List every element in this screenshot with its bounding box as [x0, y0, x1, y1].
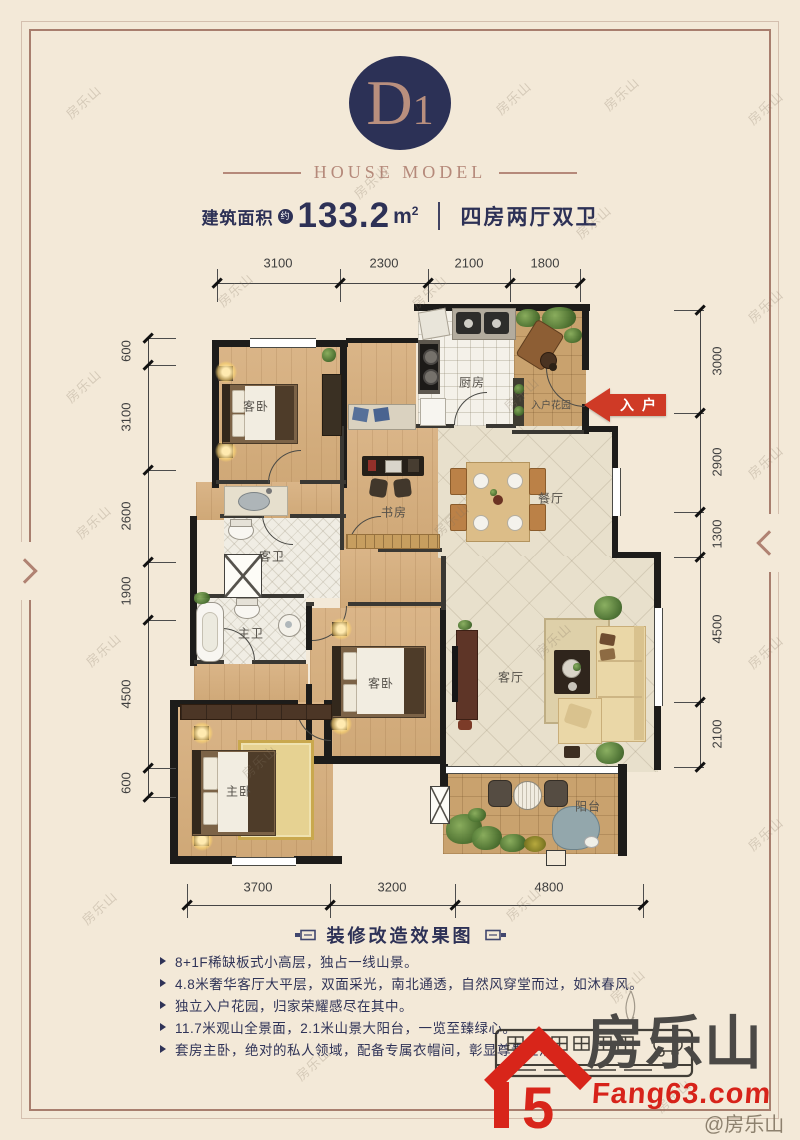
dim-top-1: 3100: [264, 256, 293, 271]
divider-line: [438, 202, 440, 230]
shaft: [430, 786, 450, 824]
chevron-right-icon: [12, 558, 37, 583]
pillow: [203, 757, 218, 790]
plant: [564, 328, 582, 343]
plant: [472, 826, 502, 850]
room-label-master-bedroom: 主卧: [226, 783, 252, 800]
desk-item: [368, 460, 376, 471]
dim-right-2: 2900: [710, 448, 725, 477]
kettle: [549, 363, 557, 371]
plant: [322, 348, 336, 362]
extension-line: [146, 768, 176, 769]
wall-segment: [170, 700, 178, 860]
branding-block[interactable]: 5 房乐山 Fang63.com @房乐山: [482, 1008, 800, 1140]
feature-item: 4.8米奢华客厅大平层，双面采光，南北通透，自然风穿堂而过，如沐春风。: [160, 972, 643, 994]
partition-wall: [486, 424, 516, 428]
sink-drain: [492, 319, 501, 328]
chair: [450, 468, 467, 495]
plate: [473, 515, 489, 531]
table-plant: [573, 663, 581, 671]
area-unit-sup: 2: [412, 204, 419, 218]
decor-pot: [458, 720, 472, 730]
dim-left-3: 2600: [119, 502, 134, 531]
bullet-arrow-icon: [160, 979, 166, 987]
partition-wall: [252, 660, 306, 664]
room-label-master-bath: 主卫: [238, 625, 264, 642]
feature-text: 11.7米观山全景面，2.1米山景大阳台，一览至臻绿心。: [175, 1017, 517, 1037]
storage-box: [373, 407, 390, 422]
bed-headboard: [222, 384, 230, 442]
area-label: 建筑面积: [202, 204, 274, 229]
subtitle-text: HOUSE MODEL: [314, 162, 487, 183]
partition-wall: [512, 430, 584, 434]
dimension-line: [148, 338, 149, 797]
bed-throw: [404, 648, 424, 714]
plant: [468, 808, 486, 822]
dim-top-3: 2100: [455, 256, 484, 271]
room-label-kitchen: 厨房: [459, 374, 485, 391]
extension-line: [146, 365, 176, 366]
brand-name: 房乐山: [586, 1012, 763, 1076]
wall-segment: [612, 552, 660, 558]
lamp: [330, 618, 352, 640]
entry-arrow: 入户: [584, 388, 666, 422]
dim-left-4: 1900: [119, 577, 134, 606]
chevron-left-icon: [756, 530, 781, 555]
window: [612, 468, 621, 516]
cutting-board: [418, 308, 450, 340]
window: [232, 857, 296, 866]
pillow: [343, 652, 357, 680]
lamp: [191, 722, 213, 744]
burner: [423, 349, 439, 365]
sofa-back: [634, 626, 644, 740]
extension-line: [340, 269, 341, 302]
stone: [584, 836, 599, 848]
basin: [238, 492, 270, 511]
corridor-floor: [194, 664, 308, 704]
window: [446, 766, 618, 774]
chair: [393, 478, 412, 498]
feature-text: 8+1F稀缺板式小高层，独占一线山景。: [175, 951, 418, 971]
room-label-living: 客厅: [498, 669, 524, 686]
bookshelf: [346, 534, 440, 549]
subtitle-line-right: [499, 172, 577, 174]
plate: [507, 473, 523, 489]
model-code: D1: [366, 71, 433, 135]
partition-wall: [348, 602, 444, 606]
plate: [473, 473, 489, 489]
side-table: [564, 746, 580, 758]
bullet-arrow-icon: [160, 1001, 166, 1009]
wall-segment: [346, 338, 418, 343]
house-logo-numeral: 5: [522, 1076, 554, 1134]
wall-segment: [612, 514, 618, 556]
cup: [568, 682, 577, 691]
poster-page: D1 HOUSE MODEL 建筑面积 约 133.2 m2 四房两厅双卫 31…: [0, 0, 800, 1140]
wall-segment: [212, 340, 219, 488]
partition-wall: [340, 426, 344, 550]
model-code-number: 1: [413, 88, 434, 134]
balcony-table: [513, 781, 542, 810]
room-label-guest-bath: 客卫: [259, 548, 285, 565]
bed-throw: [275, 386, 294, 440]
window: [250, 338, 316, 348]
chair: [544, 780, 568, 807]
model-code-letter: D: [366, 67, 412, 138]
room-label-dining: 餐厅: [538, 490, 564, 507]
window: [654, 608, 663, 706]
pillow: [232, 414, 245, 437]
centerpiece: [493, 495, 503, 505]
wall-segment: [654, 704, 661, 770]
wall-segment: [618, 764, 627, 856]
extension-line: [146, 797, 176, 798]
dim-left-6: 600: [119, 772, 134, 794]
plant-yellow: [524, 836, 546, 852]
column-stub: [546, 850, 566, 866]
wardrobe: [180, 704, 332, 720]
extension-line: [146, 620, 176, 621]
extension-line: [146, 562, 176, 563]
plate: [507, 515, 523, 531]
area-unit: m2: [393, 204, 418, 229]
area-value: 133.2: [298, 196, 391, 236]
caption-row: 装修改造效果图: [0, 922, 800, 948]
wardrobe: [322, 374, 342, 436]
dim-left-2: 3100: [119, 403, 134, 432]
room-label-bedroom-2: 客卧: [368, 675, 394, 692]
plant: [594, 596, 622, 620]
model-badge: D1: [349, 56, 451, 150]
area-row: 建筑面积 约 133.2 m2 四房两厅双卫: [0, 195, 800, 237]
caption-text: 装修改造效果图: [327, 922, 474, 948]
wall-segment: [294, 856, 342, 864]
desk-item: [408, 459, 419, 472]
dim-left-1: 600: [119, 340, 134, 362]
plant: [500, 834, 526, 852]
extension-line: [580, 269, 581, 302]
bullet-arrow-icon: [160, 1023, 166, 1031]
caption-ornament-left-icon: [294, 928, 318, 942]
house-logo-icon: 5: [482, 1024, 594, 1134]
desk-book: [385, 460, 402, 473]
entry-arrow-head-icon: [584, 388, 610, 422]
brand-credit: @房乐山: [704, 1108, 784, 1137]
next-chevron-icon[interactable]: [756, 514, 782, 572]
approx-badge: 约: [278, 209, 293, 224]
wall-segment: [582, 304, 589, 370]
dim-bottom-2: 3200: [378, 880, 407, 895]
storage-box: [352, 407, 369, 422]
extension-line: [146, 470, 176, 471]
tv-cabinet: [456, 630, 478, 720]
dim-top-4: 1800: [531, 256, 560, 271]
area-unit-m: m: [393, 205, 412, 228]
wall-segment: [440, 608, 446, 766]
wall-segment: [170, 856, 236, 864]
chair: [488, 780, 512, 807]
partition-wall: [300, 480, 346, 484]
dimension-line: [217, 283, 581, 284]
feature-text: 独立入户花园，归家荣耀感尽在其中。: [175, 995, 413, 1015]
pillow: [599, 633, 616, 646]
pillow: [203, 792, 218, 825]
pillow: [343, 684, 357, 712]
room-label-entry-garden: 入户花园: [531, 397, 571, 412]
room-label-bedroom-1: 客卧: [243, 398, 269, 415]
plant: [458, 620, 472, 630]
dim-right-3: 1300: [710, 520, 725, 549]
chair: [369, 478, 389, 498]
pillow: [599, 648, 615, 661]
bathtub-inner: [202, 612, 218, 652]
appliance: [420, 398, 446, 426]
brand-site-url[interactable]: Fang63.com: [591, 1078, 773, 1111]
faucet: [266, 488, 272, 494]
prev-chevron-icon[interactable]: [12, 542, 38, 600]
plant: [194, 592, 210, 604]
subtitle-line-left: [223, 172, 301, 174]
dimension-line: [187, 905, 644, 906]
caption-ornament-right-icon: [483, 928, 507, 942]
dim-right-5: 2100: [710, 720, 725, 749]
bullet-arrow-icon: [160, 1045, 166, 1053]
toilet-tank: [230, 519, 252, 527]
wall-segment: [612, 426, 618, 472]
chair: [529, 504, 546, 531]
burner: [423, 369, 439, 385]
room-label-study: 书房: [381, 504, 407, 521]
room-label-balcony: 阳台: [575, 798, 601, 815]
bullet-arrow-icon: [160, 957, 166, 965]
partition-wall: [290, 514, 346, 518]
shower: [224, 554, 262, 598]
sink-drain: [464, 319, 473, 328]
feature-item: 8+1F稀缺板式小高层，独占一线山景。: [160, 950, 643, 972]
partition-wall: [216, 480, 270, 484]
dim-right-1: 3000: [710, 347, 725, 376]
bed-headboard: [332, 646, 341, 716]
dim-top-2: 2300: [370, 256, 399, 271]
lamp: [215, 361, 237, 383]
toilet-tank: [236, 598, 258, 606]
dim-right-4: 4500: [710, 615, 725, 644]
feature-text: 4.8米奢华客厅大平层，双面采光，南北通透，自然风穿堂而过，如沐春风。: [175, 973, 643, 993]
extension-line: [510, 269, 511, 302]
entry-arrow-label: 入户: [610, 394, 666, 416]
bed-headboard: [192, 750, 201, 834]
plant: [596, 742, 624, 764]
sofa-seam: [598, 696, 642, 698]
partition-wall: [441, 556, 446, 610]
drain: [285, 621, 292, 628]
subtitle-row: HOUSE MODEL: [0, 162, 800, 183]
tv: [452, 646, 458, 702]
extension-line: [146, 338, 176, 339]
wall-segment: [654, 552, 661, 610]
centerpiece-plant: [490, 489, 497, 496]
dim-bottom-1: 3700: [244, 880, 273, 895]
dim-left-5: 4500: [119, 680, 134, 709]
